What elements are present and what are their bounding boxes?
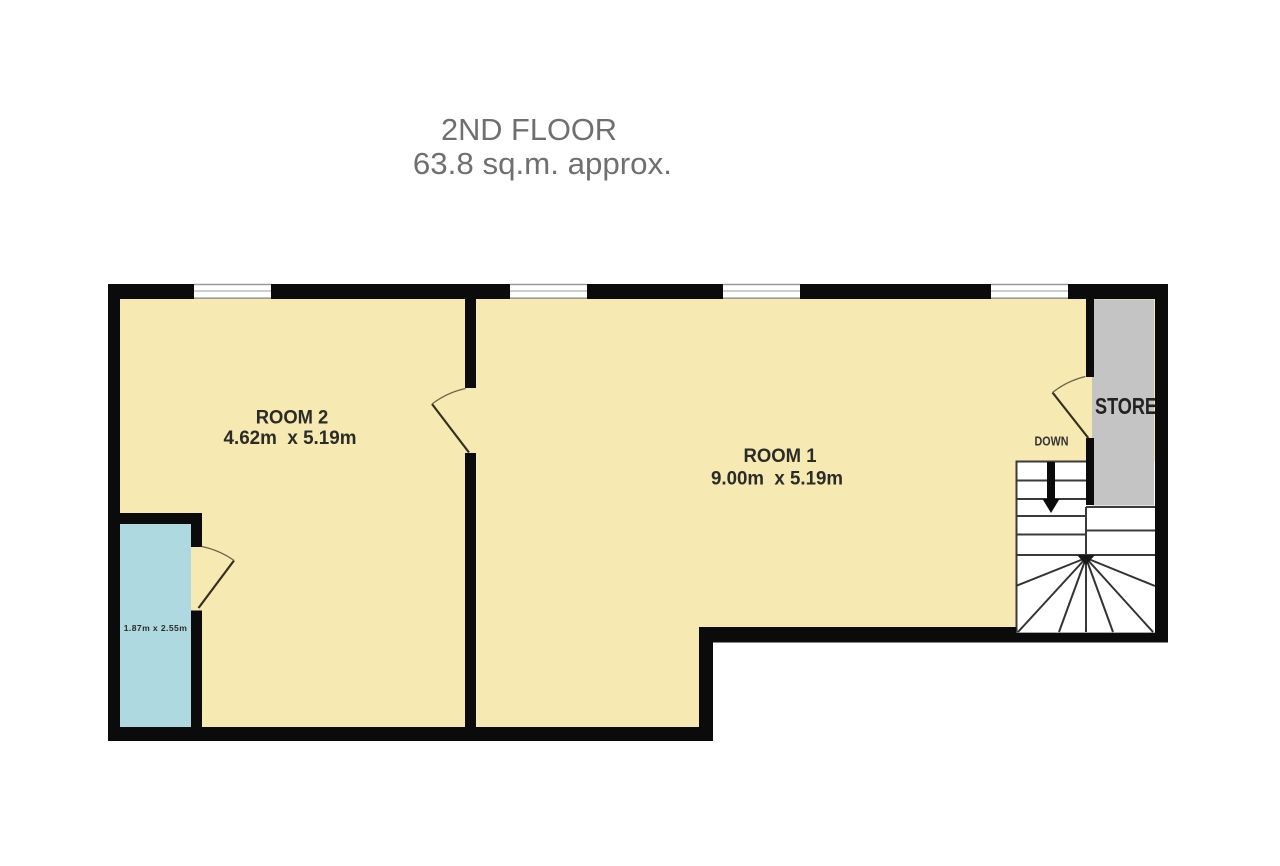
svg-text:STORE: STORE <box>1095 393 1157 419</box>
svg-text:4.62m x 5.19m: 4.62m x 5.19m <box>224 427 357 449</box>
svg-text:9.00m x 5.19m: 9.00m x 5.19m <box>711 467 843 489</box>
svg-text:ROOM 2: ROOM 2 <box>256 407 329 429</box>
svg-text:ROOM 1: ROOM 1 <box>744 445 817 467</box>
svg-text:DOWN: DOWN <box>1035 435 1069 449</box>
svg-text:63.8 sq.m. approx.: 63.8 sq.m. approx. <box>413 147 672 181</box>
svg-text:2ND FLOOR: 2ND FLOOR <box>441 113 617 147</box>
svg-text:1.87m x 2.55m: 1.87m x 2.55m <box>124 623 188 633</box>
